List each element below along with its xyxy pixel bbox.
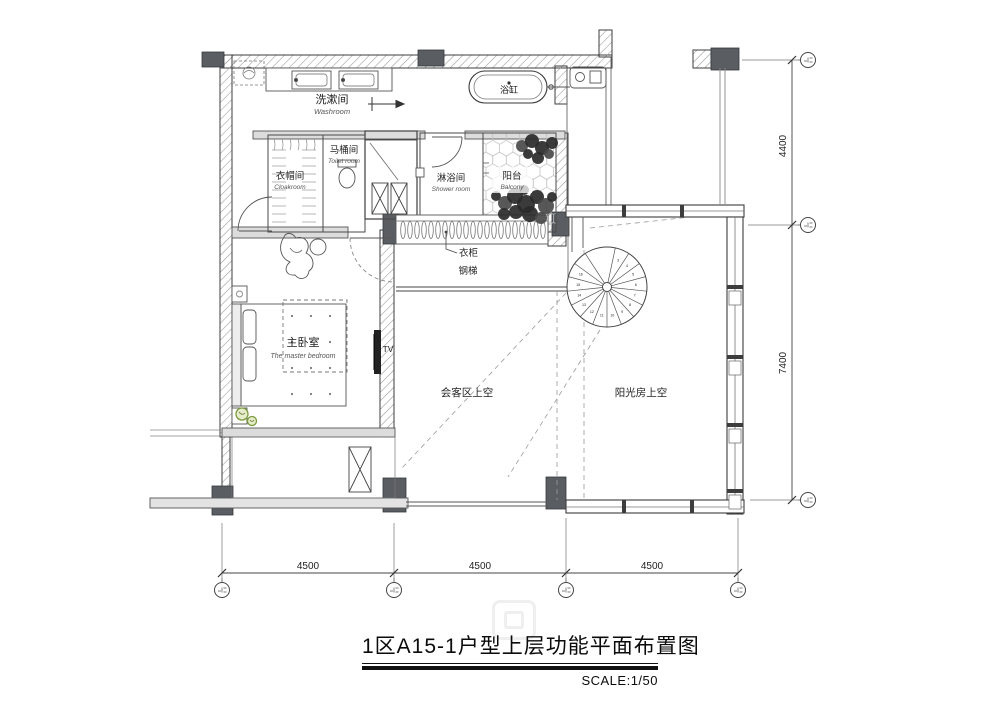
spiral-tread-number: 10	[610, 314, 614, 318]
cloakroom-label-en: Cloakroom	[274, 184, 306, 191]
dim-right-top: 4400	[778, 134, 789, 157]
balcony-label-en: Balcony	[500, 184, 524, 191]
dim-bottom-3: 4500	[641, 561, 664, 572]
drawing-title: 1区A15-1户型上层功能平面布置图	[362, 630, 658, 660]
bedroom-label-en: The master bedroom	[271, 353, 336, 360]
tv-unit	[374, 330, 381, 374]
spiral-tread-number: 3	[617, 258, 619, 262]
shower-room-label: 淋浴间	[437, 172, 466, 184]
spiral-tread-number: 11	[600, 314, 604, 318]
lower-terrace-detail	[150, 430, 371, 492]
washroom-label: 洗漱间	[316, 93, 349, 106]
void-dashed-lines	[402, 212, 736, 500]
dim-right-bottom: 7400	[778, 351, 789, 374]
spiral-tread-number: 16	[579, 273, 583, 277]
spiral-entry	[572, 217, 583, 252]
living-void-label: 会客区上空	[441, 386, 494, 399]
section-arrow-icon	[368, 97, 404, 111]
sunroom-void-label: 阳光房上空	[615, 386, 668, 399]
cloakroom-label: 衣帽间	[276, 170, 305, 182]
window-mullions	[622, 205, 743, 513]
bathtub-label: 浴缸	[500, 84, 518, 95]
scale-label: SCALE:1/50	[362, 673, 658, 688]
tv-label: TV	[383, 344, 394, 354]
spiral-tread-number: 9	[621, 310, 623, 314]
spiral-tread-number: 15	[576, 283, 580, 287]
armchair-sketch	[281, 233, 326, 278]
balcony-label: 阳台	[502, 170, 521, 182]
spiral-tread-number: 5	[632, 273, 634, 277]
washroom-counter	[266, 68, 392, 91]
dim-bottom-1: 4500	[297, 561, 320, 572]
cloakroom-door	[238, 197, 272, 231]
dim-bottom-2: 4500	[469, 561, 492, 572]
structural-columns	[202, 48, 739, 515]
bedroom-label: 主卧室	[287, 335, 320, 349]
spiral-tread-number: 7	[634, 293, 636, 297]
shaft-detail	[370, 143, 407, 214]
toilet-room-label: 马桶间	[330, 144, 359, 156]
toilet-room-label-en: Toilet room	[328, 158, 360, 165]
title-underline-thin	[362, 663, 658, 664]
sink-tap-icon	[341, 78, 344, 81]
spiral-tread-number: 12	[590, 310, 594, 314]
spiral-tread-number: 4	[626, 264, 628, 268]
title-underline-thick	[362, 666, 658, 670]
floorplan-page: 345678910111213141516 洗漱间 Washroom 浴缸 马桶…	[0, 0, 1000, 707]
shower-detail	[416, 137, 489, 177]
beam-above	[720, 68, 725, 205]
title-block: 1区A15-1户型上层功能平面布置图 SCALE:1/50	[362, 630, 658, 688]
entry-corridor	[567, 57, 611, 205]
spiral-tread-number: 6	[635, 283, 637, 287]
spiral-tread-number: 14	[577, 293, 581, 297]
shower-room-label-en: Shower room	[432, 186, 471, 193]
wardrobe-label: 衣柜	[459, 247, 479, 259]
washroom-label-en: Washroom	[314, 107, 350, 116]
glass-wall-bottom	[406, 502, 548, 506]
spiral-staircase: 345678910111213141516	[567, 247, 647, 327]
spiral-tread-number: 8	[629, 303, 631, 307]
spiral-tread-number: 13	[582, 303, 586, 307]
steel-stair-label: 钢梯	[458, 265, 478, 277]
sink-tap-icon	[294, 78, 297, 81]
